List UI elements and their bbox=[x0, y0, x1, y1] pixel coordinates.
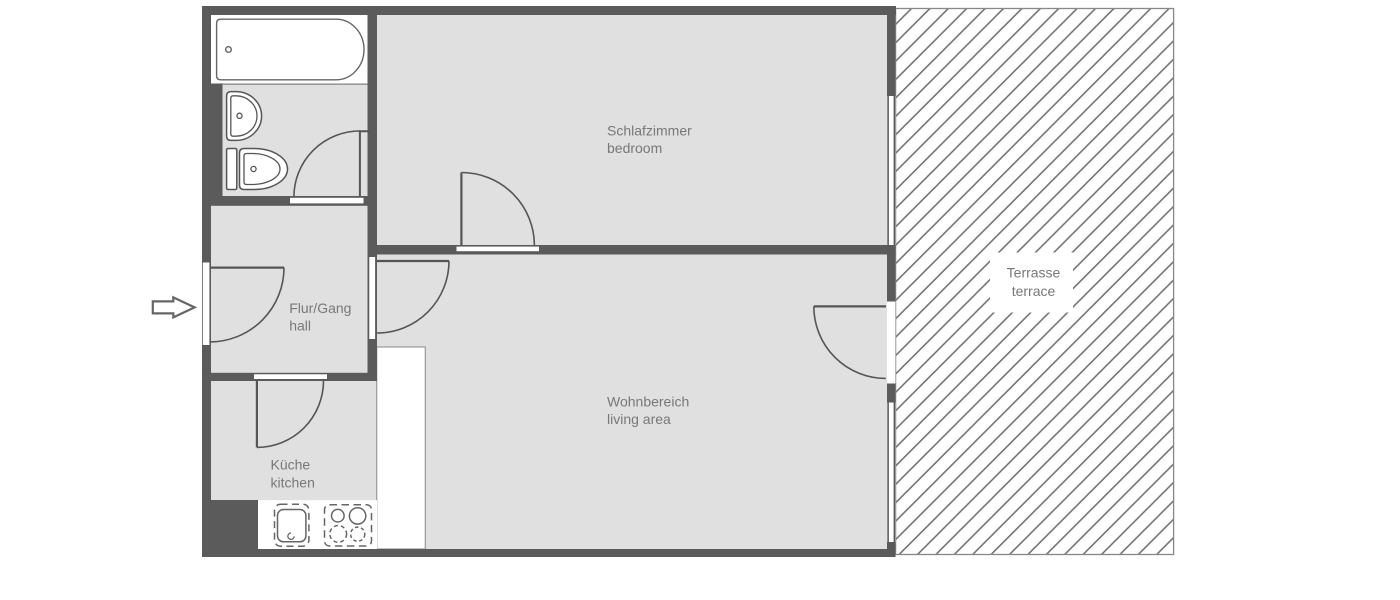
svg-text:Flur/Gang: Flur/Gang bbox=[289, 300, 351, 316]
svg-text:kitchen: kitchen bbox=[271, 474, 315, 490]
svg-text:living area: living area bbox=[607, 411, 671, 427]
svg-text:terrace: terrace bbox=[1012, 283, 1056, 299]
svg-text:bedroom: bedroom bbox=[607, 140, 662, 156]
svg-text:Terrasse: Terrasse bbox=[1007, 264, 1061, 280]
svg-text:hall: hall bbox=[289, 318, 311, 334]
svg-text:Schlafzimmer: Schlafzimmer bbox=[607, 123, 692, 139]
svg-text:Küche: Küche bbox=[271, 456, 311, 472]
svg-text:Wohnbereich: Wohnbereich bbox=[607, 394, 689, 410]
